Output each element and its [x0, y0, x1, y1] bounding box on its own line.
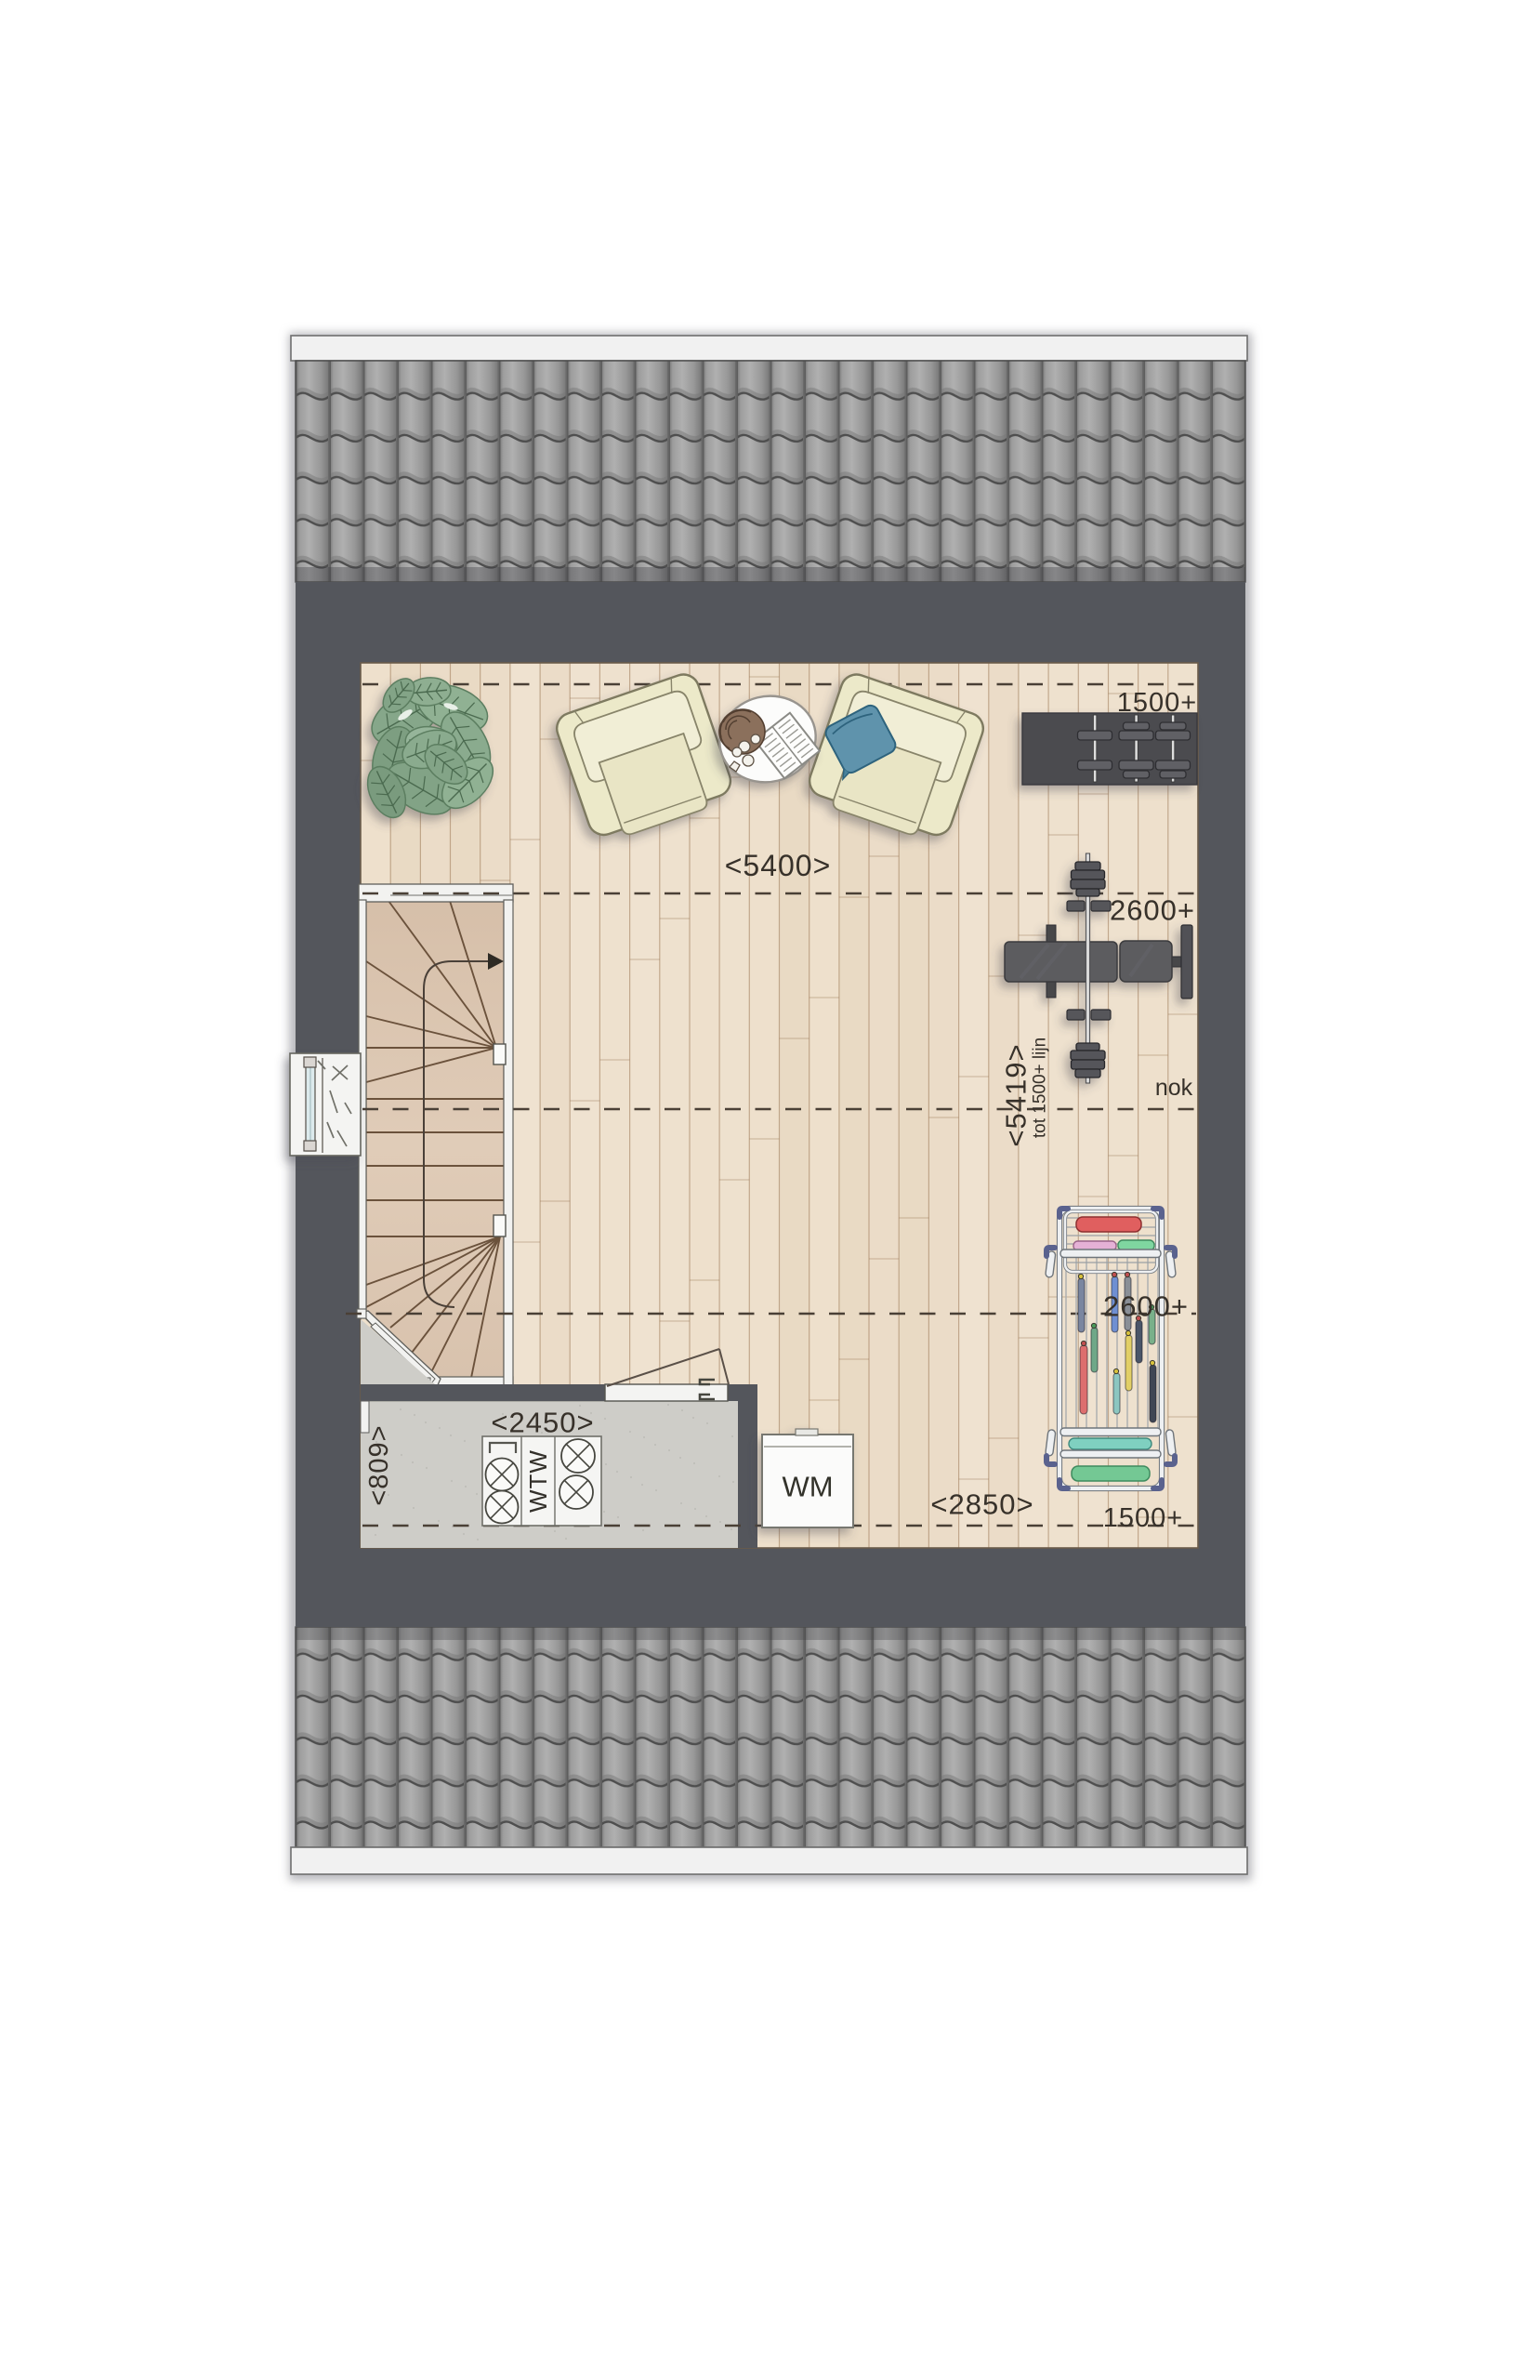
svg-text:<5419>: <5419> [1000, 1043, 1033, 1146]
svg-text:2600+: 2600+ [1103, 1290, 1189, 1323]
svg-text:<5400>: <5400> [725, 849, 832, 882]
svg-text:WM: WM [782, 1471, 833, 1503]
svg-text:<2450>: <2450> [491, 1407, 594, 1439]
svg-text:tot 1500+ lijn: tot 1500+ lijn [1031, 1038, 1050, 1138]
svg-text:<809>: <809> [364, 1424, 394, 1505]
svg-text:1500+: 1500+ [1117, 688, 1197, 718]
svg-text:nok: nok [1155, 1075, 1193, 1101]
svg-text:2600+: 2600+ [1110, 894, 1195, 927]
svg-text:1500+: 1500+ [1103, 1503, 1183, 1533]
svg-text:<2850>: <2850> [930, 1488, 1033, 1521]
svg-text:WTW: WTW [524, 1449, 552, 1513]
